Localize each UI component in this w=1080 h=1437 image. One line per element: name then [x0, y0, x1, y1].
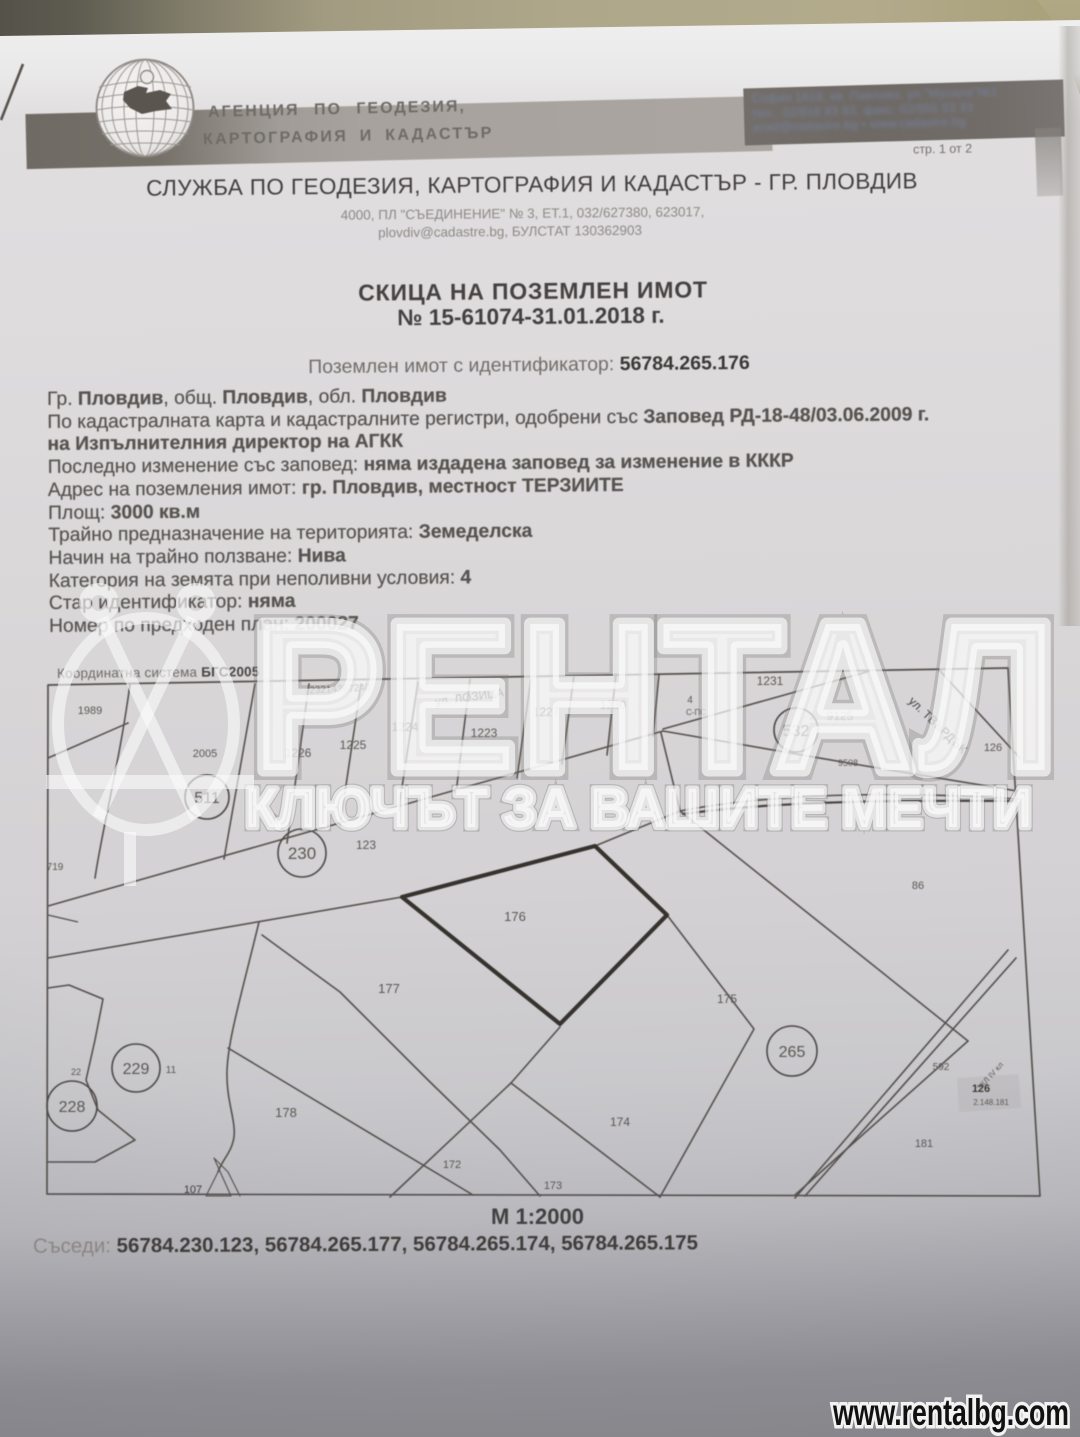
svg-text:КЛЮЧЪТ ЗА ВАШИТЕ МЕЧТИ: КЛЮЧЪТ ЗА ВАШИТЕ МЕЧТИ	[245, 776, 1032, 839]
svg-text:www.rentalbg.com: www.rentalbg.com	[832, 1392, 1069, 1433]
